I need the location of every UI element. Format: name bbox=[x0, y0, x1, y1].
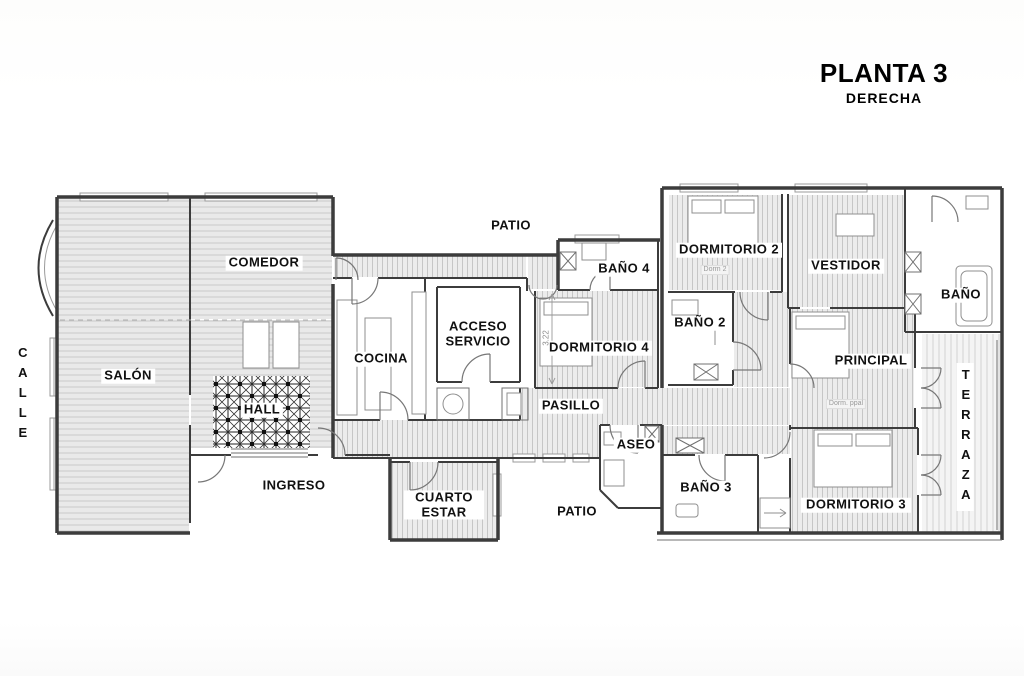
wardrobe bbox=[243, 322, 269, 368]
shaft-box bbox=[905, 294, 921, 314]
room-label-pasillo: PASILLO bbox=[539, 399, 603, 414]
bay-window bbox=[39, 220, 58, 316]
room-label-patio-bottom: PATIO bbox=[554, 505, 600, 520]
room-label-bano2: BAÑO 2 bbox=[671, 316, 729, 331]
shaft-box bbox=[694, 364, 718, 380]
door-salon-ingreso bbox=[198, 455, 225, 482]
pillow bbox=[856, 434, 890, 446]
service-corridor-floor bbox=[334, 256, 526, 277]
room-label-bano4: BAÑO 4 bbox=[595, 262, 653, 277]
pillow bbox=[725, 200, 754, 213]
vestidor-bench bbox=[836, 214, 874, 236]
room-label-bano3: BAÑO 3 bbox=[677, 481, 735, 496]
wardrobe bbox=[273, 322, 299, 368]
room-label-salon: SALÓN bbox=[101, 369, 155, 384]
shaft-box bbox=[560, 252, 576, 270]
service-sink bbox=[443, 394, 463, 414]
room-label-ingreso: INGRESO bbox=[260, 479, 329, 494]
door-bano bbox=[932, 196, 958, 222]
sink-bano2 bbox=[672, 300, 698, 315]
room-label-cocina: COCINA bbox=[351, 352, 411, 367]
aseo-fixture bbox=[604, 460, 624, 486]
room-label-principal: PRINCIPAL bbox=[832, 354, 911, 369]
room-label-patio-top: PATIO bbox=[488, 219, 534, 234]
plan-subtitle: DERECHA bbox=[818, 90, 950, 106]
floor-plan-page: PLANTA 3 DERECHA CALLE SALÓN COMEDOR HAL… bbox=[0, 0, 1024, 676]
hall-steps bbox=[231, 449, 308, 457]
plan-title: PLANTA 3 bbox=[818, 58, 950, 89]
room-label-aseo: ASEO bbox=[614, 438, 658, 453]
shaft-box bbox=[676, 438, 704, 453]
vestidor-floor bbox=[789, 195, 904, 307]
note-dorm2: Dorm 2 bbox=[701, 265, 730, 275]
toilet-bano3 bbox=[676, 504, 698, 517]
passage-floor bbox=[528, 256, 558, 289]
door-acceso-servicio bbox=[462, 354, 490, 382]
note-dorm-ppal: Dorm. ppal bbox=[826, 399, 866, 409]
room-label-dormitorio3: DORMITORIO 3 bbox=[801, 498, 911, 513]
title-block: PLANTA 3 DERECHA bbox=[818, 58, 950, 106]
room-label-comedor: COMEDOR bbox=[226, 256, 303, 271]
salon-floor bbox=[58, 198, 189, 532]
pillow bbox=[692, 200, 721, 213]
pillow bbox=[796, 316, 845, 329]
bano4-cabinet bbox=[582, 243, 606, 260]
room-label-calle: CALLE bbox=[14, 341, 31, 449]
room-label-cuarto-estar: CUARTO ESTAR bbox=[404, 490, 484, 519]
pillow bbox=[544, 302, 588, 315]
distributor-floor bbox=[734, 292, 789, 387]
shaft-box bbox=[905, 252, 921, 272]
room-label-dormitorio4: DORMITORIO 4 bbox=[546, 341, 652, 356]
toilet bbox=[966, 196, 988, 209]
room-label-terraza: TERRAZA bbox=[957, 363, 974, 511]
service-fixture bbox=[507, 393, 521, 415]
pillow bbox=[818, 434, 852, 446]
room-label-dormitorio2: DORMITORIO 2 bbox=[676, 243, 782, 258]
room-label-bano: BAÑO bbox=[938, 288, 984, 303]
room-label-acceso-servicio: ACCESO SERVICIO bbox=[439, 319, 517, 348]
door-bano3 bbox=[699, 455, 725, 481]
room-label-hall: HALL bbox=[241, 403, 283, 418]
dimension-dormitorio4: 3.22 bbox=[542, 330, 551, 346]
kitchen-cabinet bbox=[412, 292, 426, 414]
room-label-vestidor: VESTIDOR bbox=[808, 259, 884, 274]
